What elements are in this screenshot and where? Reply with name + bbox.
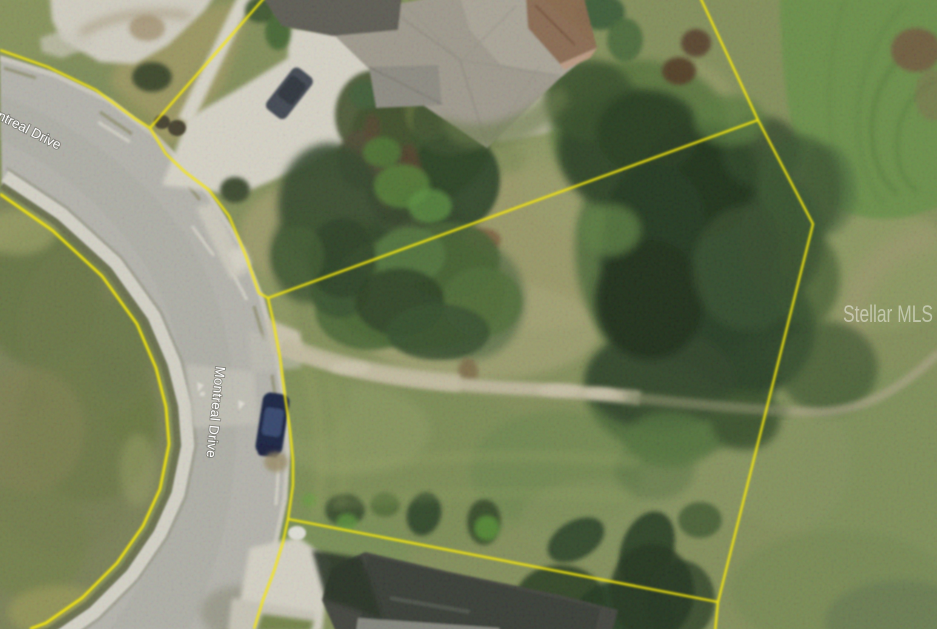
svg-text:Stellar MLS: Stellar MLS [843,301,933,328]
